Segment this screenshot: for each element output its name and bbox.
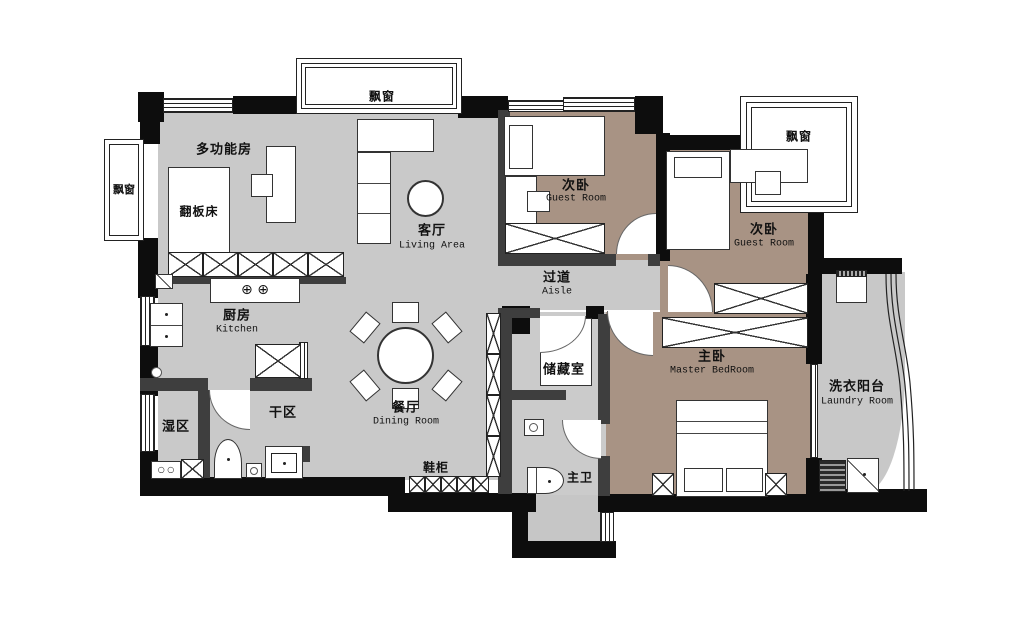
- washing-machine: [836, 270, 867, 303]
- floor-aisle: [506, 260, 660, 310]
- wall-bath-master-upper: [598, 314, 610, 424]
- label-laundry-en: Laundry Room: [821, 397, 893, 408]
- master-bed-bench: [726, 468, 763, 492]
- shoe-cabinet-cell: [473, 476, 489, 493]
- dry-toilet-dot: [227, 458, 230, 461]
- dining-chair: [392, 302, 419, 323]
- master-wardrobe: [662, 317, 808, 348]
- kitchen-cabinet-cell: [308, 252, 344, 277]
- master-bath-toilet-tank: [536, 468, 537, 493]
- label-aisle-zh: 过道: [543, 267, 571, 286]
- window-guest1-left: [508, 100, 564, 112]
- kitchen-sink-cabinet: [150, 303, 183, 347]
- label-guest2-zh: 次卧: [750, 219, 778, 238]
- wet-area-box: [181, 459, 204, 479]
- sofa-cushion-line: [358, 213, 390, 214]
- kitchen-stove: ⊕ ⊕: [210, 278, 300, 303]
- kitchen-cabinet-cell: [273, 252, 308, 277]
- label-bay-window-left: 飘窗: [113, 181, 135, 197]
- label-bay-window-top: 飘窗: [369, 88, 395, 105]
- kitchen-sink-dot: [165, 335, 168, 338]
- sofa-top: [357, 119, 434, 152]
- master-bath-sink-bowl: [529, 423, 538, 432]
- window-guest1-top: [563, 97, 635, 112]
- master-bed-bench: [684, 468, 723, 492]
- dry-area-toilet: [214, 439, 242, 479]
- laundry-drying-rack: [819, 460, 846, 492]
- guest1-wardrobe: [505, 223, 605, 254]
- wall-kitchen-bottom-right: [250, 378, 312, 391]
- bay-window-top: [296, 58, 462, 114]
- shoe-cabinet-cell: [486, 395, 501, 436]
- label-guest2-en: Guest Room: [734, 239, 794, 250]
- shoe-cabinet-cell: [457, 476, 473, 493]
- guest2-pillow: [674, 157, 722, 178]
- guest1-pillow: [509, 125, 533, 169]
- wall-bottom-b: [390, 493, 536, 512]
- living-round-table: [407, 180, 444, 217]
- label-multi-room: 多功能房: [196, 139, 252, 158]
- master-nightstand: [765, 473, 787, 496]
- floor-plan: ⊕ ⊕: [0, 0, 1029, 628]
- label-dining-en: Dining Room: [373, 417, 439, 428]
- kitchen-cabinet-cell: [168, 252, 203, 277]
- label-flip-bed: 翻板床: [179, 203, 218, 220]
- label-kitchen-en: Kitchen: [216, 325, 258, 336]
- dining-table: [377, 327, 434, 384]
- wall-laundry-left-upper: [806, 274, 822, 364]
- wall-vestibule-bottom: [512, 541, 616, 558]
- master-bath-sink: [524, 419, 544, 436]
- master-bed-headboard-line: [677, 421, 767, 422]
- wall-bottom-a: [140, 477, 393, 496]
- wall-guest1-aisle: [498, 254, 616, 266]
- shoe-cabinet-cell: [486, 313, 501, 354]
- label-aisle-en: Aisle: [542, 287, 572, 298]
- dry-fixture-knob: [250, 467, 258, 475]
- sofa-side: [357, 152, 391, 244]
- shoe-cabinet-cell: [486, 436, 501, 477]
- stove-burners-symbol: ⊕ ⊕: [241, 282, 269, 298]
- kitchen-floor-drain: [151, 367, 162, 378]
- laundry-sink: [847, 458, 879, 493]
- label-living-zh: 客厅: [418, 220, 446, 239]
- shoe-cabinet-cell: [425, 476, 441, 493]
- label-storage: 储藏室: [543, 359, 585, 378]
- multi-room-chair: [251, 174, 273, 197]
- label-dry-area: 干区: [269, 402, 297, 421]
- window-vestibule-right: [600, 512, 614, 542]
- shoe-cabinet-cell: [486, 354, 501, 395]
- window-left-wet-area: [140, 394, 155, 452]
- guest2-nightstand: [755, 171, 781, 195]
- dry-vanity-dot: [283, 462, 286, 465]
- shoe-cabinet-cell: [441, 476, 457, 493]
- wall-left-mid: [138, 238, 158, 298]
- kitchen-cabinet-cell: [203, 252, 238, 277]
- label-master-zh: 主卧: [698, 346, 726, 365]
- guest2-wardrobe: [714, 283, 808, 314]
- wall-guest1-top-corner: [635, 96, 663, 134]
- floor-entry-vestibule: [528, 495, 600, 543]
- wall-storage-bath: [510, 390, 566, 400]
- master-bed-headboard-line: [677, 433, 767, 434]
- label-laundry-zh: 洗衣阳台: [829, 376, 885, 395]
- shoe-cabinet-cell: [409, 476, 425, 493]
- wall-bath-master-lower: [598, 456, 610, 496]
- label-living-en: Living Area: [399, 241, 465, 252]
- label-master-en: Master BedRoom: [670, 366, 754, 377]
- sofa-cushion-line: [358, 183, 390, 184]
- window-master-laundry: [810, 364, 818, 458]
- wet-cabinet-symbol: ○ ○: [158, 465, 175, 474]
- kitchen-cabinet-cell: [238, 252, 273, 277]
- washer-control-panel: [836, 270, 867, 277]
- label-master-bath: 主卫: [567, 469, 593, 486]
- label-guest1-en: Guest Room: [546, 194, 606, 205]
- kitchen-fridge: [255, 344, 301, 378]
- label-kitchen-zh: 厨房: [223, 305, 251, 324]
- laundry-sink-dot: [863, 473, 866, 476]
- label-bay-window-right: 飘窗: [786, 128, 812, 145]
- wall-top-left-corner: [138, 92, 164, 122]
- kitchen-sink-divider: [151, 325, 182, 326]
- label-dining-zh: 餐厅: [392, 397, 420, 416]
- dry-area-fixture: [246, 463, 262, 478]
- window-top-left: [163, 98, 233, 113]
- kitchen-corner-shelf: [155, 274, 173, 289]
- master-nightstand: [652, 473, 674, 496]
- master-bath-toilet-dot: [548, 480, 551, 483]
- label-guest1-zh: 次卧: [562, 175, 590, 194]
- wet-area-cabinet: ○ ○: [151, 461, 181, 479]
- dry-area-vanity: [265, 446, 303, 479]
- wall-guest1-door-stub: [648, 254, 660, 266]
- label-wet-area: 湿区: [162, 416, 190, 435]
- kitchen-sink-dot: [165, 313, 168, 316]
- master-bath-toilet: [527, 467, 564, 494]
- label-shoe-cabinet: 鞋柜: [423, 459, 449, 476]
